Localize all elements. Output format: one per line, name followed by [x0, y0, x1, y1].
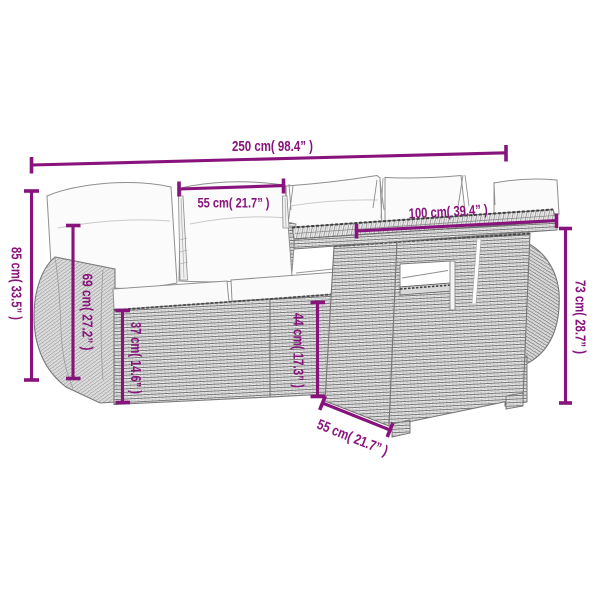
- svg-text:55 cm( 21.7” ): 55 cm( 21.7” ): [198, 196, 270, 211]
- svg-text:69 cm( 27.2” ): 69 cm( 27.2” ): [79, 274, 95, 351]
- svg-text:44 cm( 17.3” ): 44 cm( 17.3” ): [290, 313, 306, 388]
- svg-text:250 cm( 98.4” ): 250 cm( 98.4” ): [232, 139, 313, 155]
- svg-text:55 cm( 21.7” ): 55 cm( 21.7” ): [315, 417, 391, 460]
- svg-text:85 cm( 33.5” ): 85 cm( 33.5” ): [8, 247, 24, 320]
- svg-text:73 cm( 28.7” ): 73 cm( 28.7” ): [572, 280, 588, 354]
- svg-text:37 cm( 14.6” ): 37 cm( 14.6” ): [127, 322, 143, 394]
